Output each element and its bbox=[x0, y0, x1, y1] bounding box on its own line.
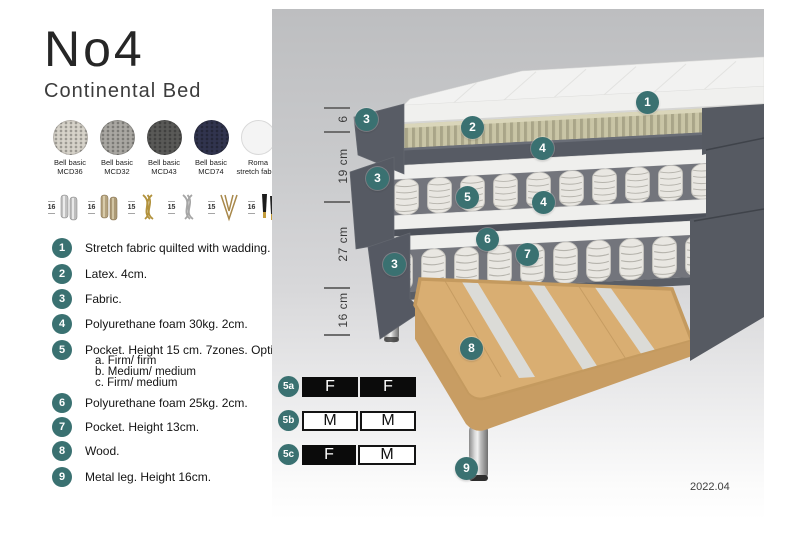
callout-4b: 4 bbox=[532, 191, 555, 214]
leg-height-label: 15 bbox=[208, 204, 216, 211]
part-row: 9 Metal leg. Height 16cm. bbox=[52, 467, 211, 487]
part-number-badge: 8 bbox=[52, 441, 72, 461]
leg-option: 15 bbox=[206, 192, 244, 222]
leg-option: 16 bbox=[46, 192, 84, 222]
dimension-tick bbox=[324, 334, 350, 336]
fabric-name: Bell basic bbox=[195, 158, 227, 167]
firmness-badge-5b: 5b bbox=[278, 410, 299, 431]
callout-2: 2 bbox=[461, 116, 484, 139]
firmness-cell: F bbox=[302, 377, 358, 397]
fabric-name: Roma bbox=[248, 158, 268, 167]
leg-height-label: 16 bbox=[248, 204, 256, 211]
firmness-row-5b: M M bbox=[302, 411, 416, 431]
fabric-swatch: Bell basicMCD74 bbox=[189, 120, 233, 176]
dimension-tick bbox=[324, 201, 350, 203]
leg-cylinder-silver-icon bbox=[57, 192, 81, 222]
part-label: Stretch fabric quilted with wadding. bbox=[85, 241, 270, 255]
fabric-code: MCD36 bbox=[57, 167, 82, 176]
firmness-cell: F bbox=[360, 377, 416, 397]
leg-option: 15 bbox=[166, 192, 204, 222]
callout-5: 5 bbox=[456, 186, 479, 209]
page: No4 Continental Bed Bell basicMCD36 Bell… bbox=[0, 0, 800, 533]
part-row: 8 Wood. bbox=[52, 441, 119, 461]
fabric-swatch-row: Bell basicMCD36 Bell basicMCD32 Bell bas… bbox=[48, 120, 280, 176]
leg-cylinder-bronze-icon bbox=[97, 192, 121, 222]
dimension-label: 16 cm bbox=[336, 292, 350, 327]
firmness-badge-5c: 5c bbox=[278, 444, 299, 465]
fabric-code: MCD32 bbox=[104, 167, 129, 176]
part-label: Polyurethane foam 30kg. 2cm. bbox=[85, 317, 248, 331]
part-row: 7 Pocket. Height 13cm. bbox=[52, 417, 199, 437]
fabric-swatch: Bell basicMCD43 bbox=[142, 120, 186, 176]
fabric-name: Bell basic bbox=[101, 158, 133, 167]
part-label: Metal leg. Height 16cm. bbox=[85, 470, 211, 484]
page-subtitle: Continental Bed bbox=[44, 80, 201, 103]
part-row: 4 Polyurethane foam 30kg. 2cm. bbox=[52, 314, 248, 334]
fabric-swatch-disc bbox=[53, 120, 88, 155]
dimension-label: 27 cm bbox=[336, 226, 350, 261]
part-number-badge: 4 bbox=[52, 314, 72, 334]
leg-option: 16 bbox=[86, 192, 124, 222]
part-number-badge: 9 bbox=[52, 467, 72, 487]
leg-height-label: 16 bbox=[48, 204, 56, 211]
firmness-cell: M bbox=[360, 411, 416, 431]
part-row: 1 Stretch fabric quilted with wadding. bbox=[52, 238, 270, 258]
dimension-label: 19 cm bbox=[336, 148, 350, 183]
fabric-swatch-disc bbox=[100, 120, 135, 155]
leg-twisted-gold-icon bbox=[137, 192, 161, 222]
firmness-cell: F bbox=[302, 445, 356, 465]
part-label: Wood. bbox=[85, 444, 119, 458]
fabric-code: MCD74 bbox=[198, 167, 223, 176]
part-row: 2 Latex. 4cm. bbox=[52, 264, 147, 284]
callout-4a: 4 bbox=[531, 137, 554, 160]
callout-9: 9 bbox=[455, 457, 478, 480]
leg-option: 15 bbox=[126, 192, 164, 222]
fabric-name: Bell basic bbox=[54, 158, 86, 167]
bed-cutaway-illustration bbox=[272, 9, 764, 520]
callout-1: 1 bbox=[636, 91, 659, 114]
firmness-row-5c: F M bbox=[302, 445, 416, 465]
suboption-c: c. Firm/ medium bbox=[95, 378, 177, 390]
diagram-panel: 6 19 cm 27 cm 16 cm 1 2 3 3 3 4 4 5 6 7 … bbox=[272, 9, 764, 520]
fabric-swatch: Bell basicMCD32 bbox=[95, 120, 139, 176]
firmness-row-5a: F F bbox=[302, 377, 416, 397]
part-number-badge: 5 bbox=[52, 340, 72, 360]
callout-3c: 3 bbox=[383, 253, 406, 276]
part-row: 5 Pocket. Height 15 cm. 7zones. Option: bbox=[52, 340, 290, 360]
callout-3b: 3 bbox=[366, 167, 389, 190]
leg-height-label: 15 bbox=[168, 204, 176, 211]
page-title: No4 bbox=[44, 22, 201, 76]
fabric-swatch-disc bbox=[241, 120, 276, 155]
firmness-badge-5a: 5a bbox=[278, 376, 299, 397]
brand-block: No4 Continental Bed bbox=[44, 22, 201, 103]
dimension-tick bbox=[324, 107, 350, 109]
part-number-badge: 1 bbox=[52, 238, 72, 258]
dimension-tick bbox=[324, 131, 350, 133]
leg-height-label: 16 bbox=[88, 204, 96, 211]
fabric-code: MCD43 bbox=[151, 167, 176, 176]
part-number-badge: 2 bbox=[52, 264, 72, 284]
callout-3a: 3 bbox=[355, 108, 378, 131]
leg-hairpin-icon bbox=[217, 192, 241, 222]
firmness-cell: M bbox=[302, 411, 358, 431]
part-label: Polyurethane foam 25kg. 2cm. bbox=[85, 396, 248, 410]
callout-8: 8 bbox=[460, 337, 483, 360]
part-label: Latex. 4cm. bbox=[85, 267, 147, 281]
callout-7: 7 bbox=[516, 243, 539, 266]
part-row: 3 Fabric. bbox=[52, 289, 122, 309]
firmness-cell: M bbox=[358, 445, 416, 465]
dimension-label: 6 bbox=[336, 115, 350, 122]
dimension-tick bbox=[324, 287, 350, 289]
part-label: Pocket. Height 13cm. bbox=[85, 420, 199, 434]
part-number-badge: 3 bbox=[52, 289, 72, 309]
version-label: 2022.04 bbox=[690, 481, 730, 493]
part-label: Fabric. bbox=[85, 292, 122, 306]
fabric-swatch-disc bbox=[194, 120, 229, 155]
leg-options-row: 16 16 15 bbox=[46, 192, 284, 222]
leg-height-label: 15 bbox=[128, 204, 136, 211]
fabric-swatch: Bell basicMCD36 bbox=[48, 120, 92, 176]
part-row: 6 Polyurethane foam 25kg. 2cm. bbox=[52, 393, 248, 413]
part-number-badge: 7 bbox=[52, 417, 72, 437]
fabric-swatch-disc bbox=[147, 120, 182, 155]
fabric-name: Bell basic bbox=[148, 158, 180, 167]
leg-twisted-silver-icon bbox=[177, 192, 201, 222]
wood-base bbox=[415, 279, 692, 431]
callout-6: 6 bbox=[476, 228, 499, 251]
part-number-badge: 6 bbox=[52, 393, 72, 413]
